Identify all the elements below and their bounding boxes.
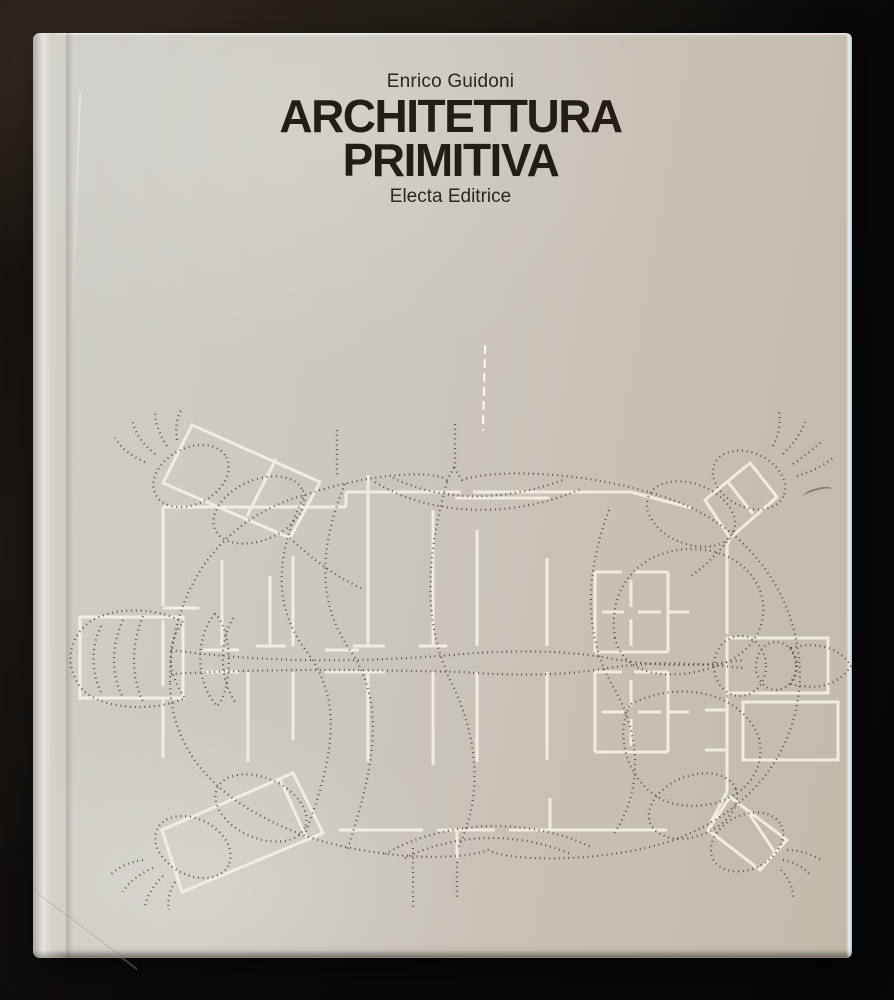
room-stubs bbox=[668, 612, 689, 712]
title-line-2: PRIMITIVA bbox=[49, 138, 852, 182]
neck-ring-1 bbox=[714, 636, 766, 696]
neck-ring-2 bbox=[756, 642, 796, 690]
dotted-turtle-group bbox=[70, 410, 851, 910]
leg-rect-bottom-left bbox=[162, 773, 323, 892]
scute-center-curves bbox=[430, 482, 635, 850]
head-outline bbox=[791, 645, 851, 687]
cover-title-block: Enrico Guidoni ARCHITETTURA PRIMITIVA El… bbox=[33, 70, 852, 209]
title-line-1: ARCHITETTURA bbox=[49, 94, 852, 138]
leg-rect-top-left bbox=[163, 425, 320, 538]
left-ankle-rings bbox=[200, 614, 235, 706]
claws-bottom-left bbox=[109, 860, 175, 910]
scute-top-band bbox=[375, 478, 583, 510]
plan-bottom-wall bbox=[339, 798, 667, 858]
scute-left-curves bbox=[282, 484, 373, 850]
claws-top-right bbox=[773, 412, 833, 476]
publisher-name: Electa Editrice bbox=[49, 185, 852, 209]
leg-top-right-foot bbox=[703, 439, 795, 521]
plumb-lines bbox=[337, 424, 457, 907]
lower-right-rectangle bbox=[743, 702, 838, 760]
photo-background: Enrico Guidoni ARCHITETTURA PRIMITIVA El… bbox=[0, 0, 894, 1000]
book-bottom-edge bbox=[33, 950, 852, 958]
left-foot-toes bbox=[94, 616, 144, 702]
plan-corridor-stubs bbox=[203, 650, 359, 672]
claws-bottom-right bbox=[781, 850, 821, 898]
head-rectangle bbox=[727, 638, 828, 693]
book-cover: Enrico Guidoni ARCHITETTURA PRIMITIVA El… bbox=[33, 33, 852, 958]
leg-bottom-left-thigh bbox=[205, 761, 317, 855]
scute-right-oval-lower bbox=[623, 691, 760, 805]
left-foot-outline bbox=[70, 610, 185, 707]
plan-left-wall bbox=[163, 507, 199, 758]
plan-lines-group bbox=[80, 425, 838, 892]
connector-curves bbox=[290, 538, 730, 588]
plan-lower-verticals bbox=[248, 672, 477, 765]
leg-top-left-thigh bbox=[203, 463, 315, 557]
leg-rect-top-right bbox=[705, 463, 777, 538]
room-a-cross bbox=[602, 580, 661, 646]
turtle-plan-illustration bbox=[43, 410, 855, 910]
leg-bottom-right-thigh bbox=[639, 761, 747, 851]
lower-right-stubs bbox=[705, 710, 727, 750]
left-foot-rectangle bbox=[80, 617, 183, 698]
plan-upper-verticals bbox=[222, 475, 477, 646]
plan-top-walls bbox=[163, 492, 631, 507]
